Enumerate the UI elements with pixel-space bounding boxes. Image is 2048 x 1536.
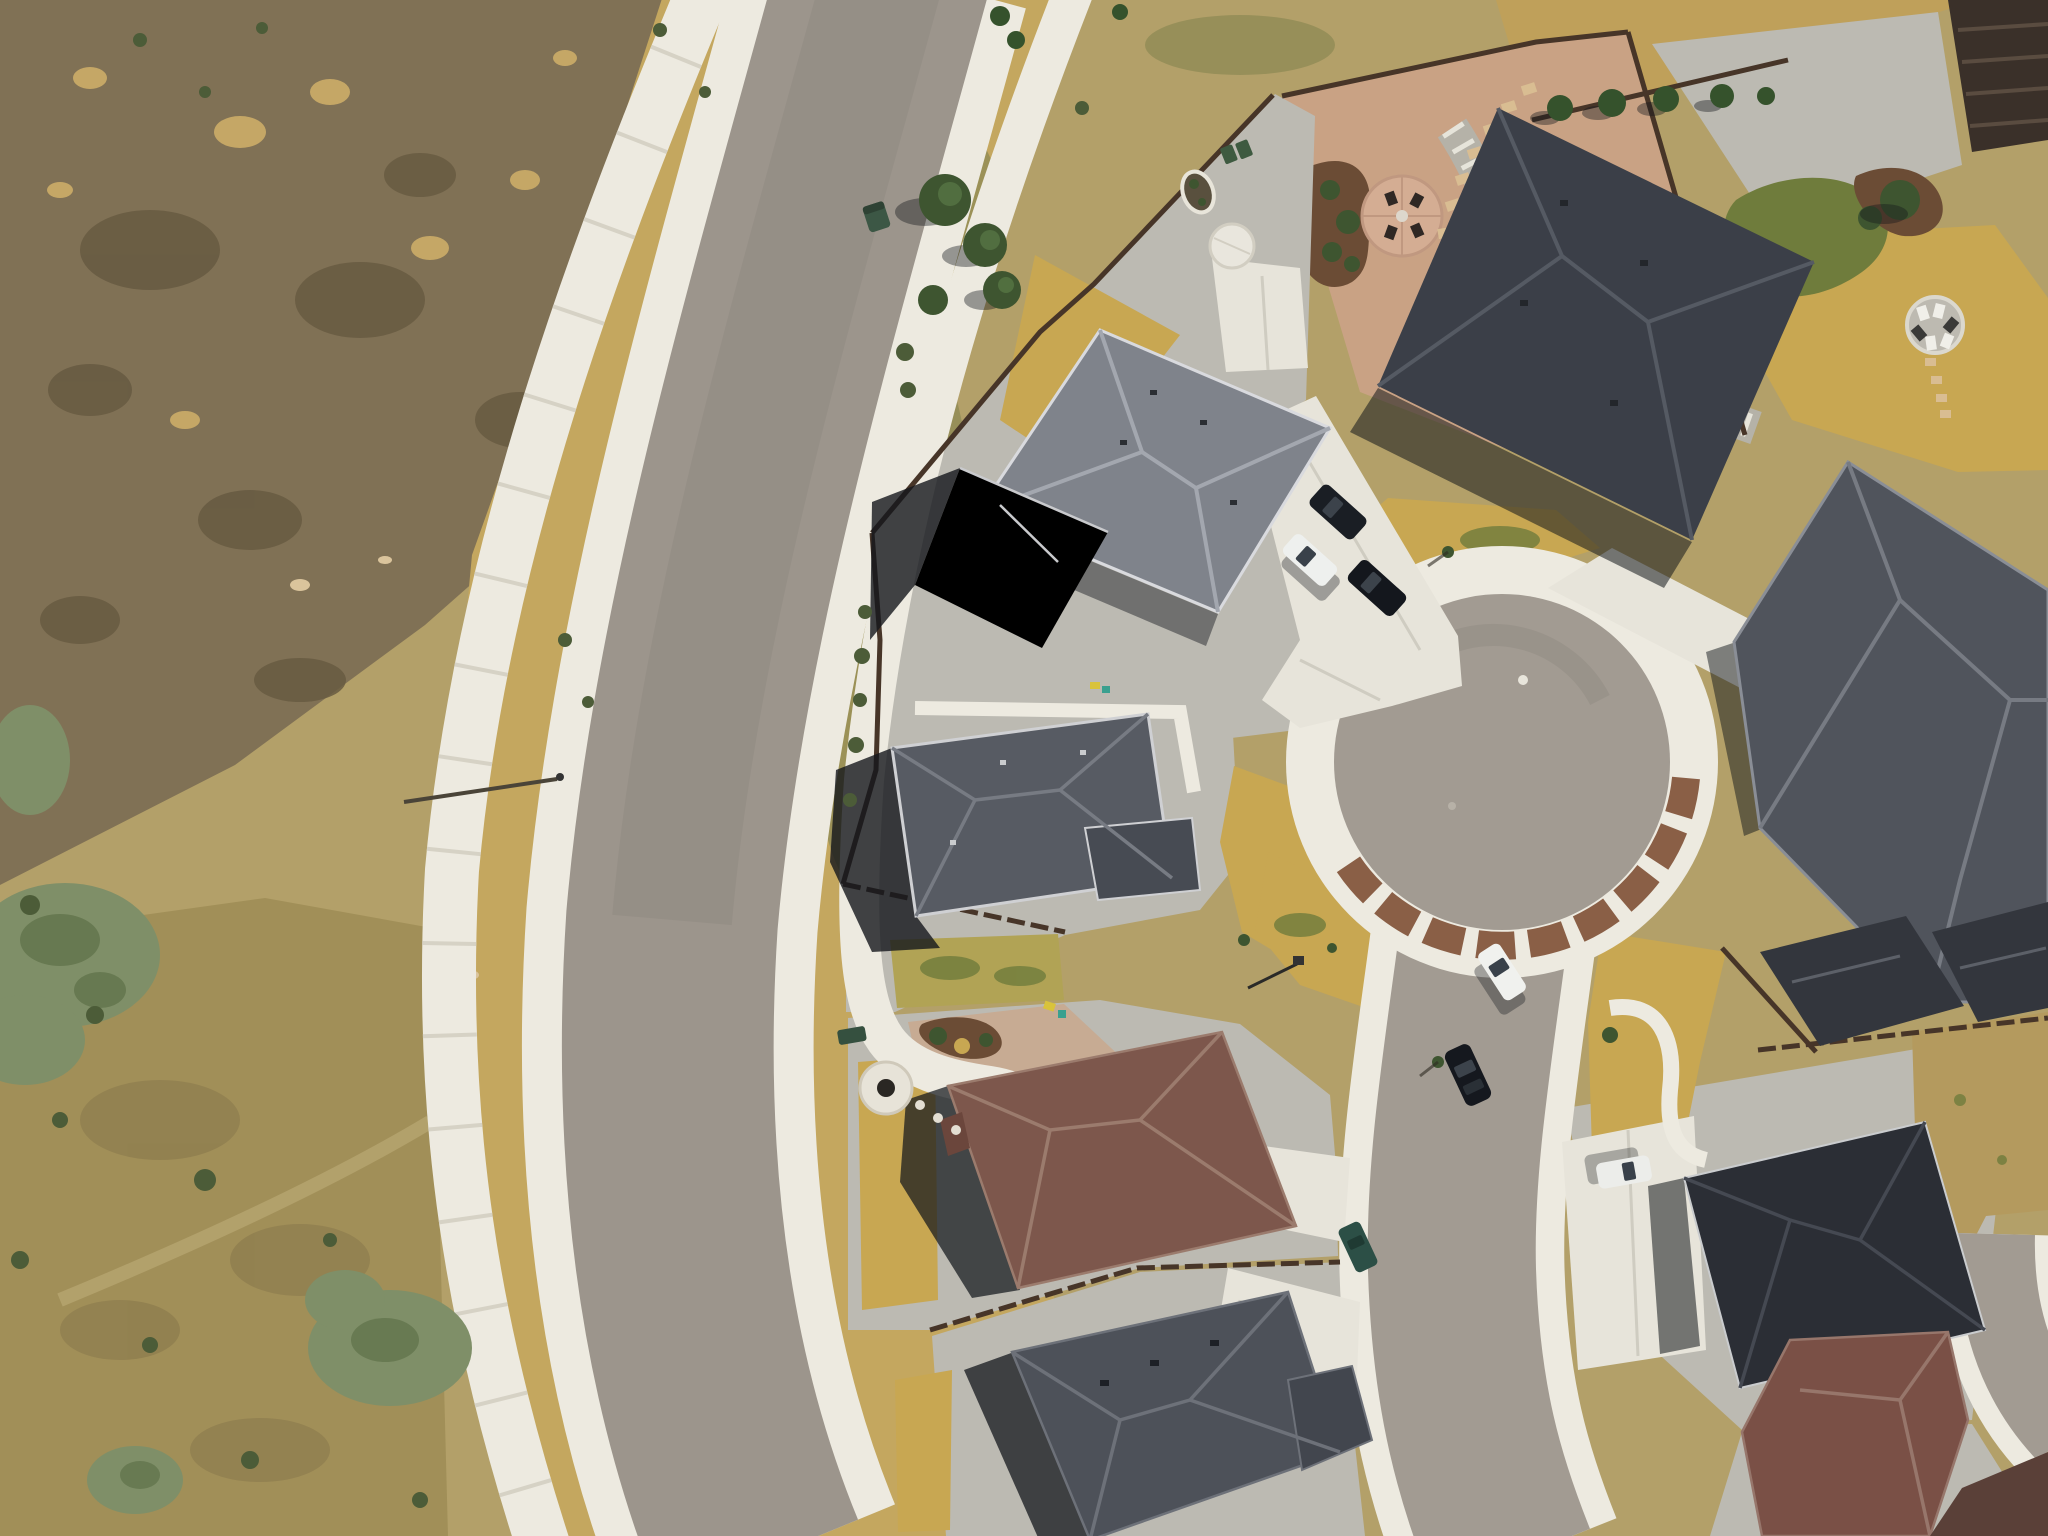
wing [1085, 818, 1200, 900]
planter-shrub [1189, 179, 1199, 189]
planter-shrub [1198, 198, 1206, 206]
aerial-photo-canvas [0, 0, 2048, 1536]
manhole-2 [1448, 802, 1456, 810]
g-yard-shrub [979, 1033, 993, 1047]
house-center-left [892, 714, 1200, 916]
g-yard-shrub [929, 1027, 947, 1045]
aerial-photo [0, 0, 2048, 1536]
patio-top-house [1212, 258, 1308, 372]
manhole [1518, 675, 1528, 685]
ornamental-grass [954, 1038, 970, 1054]
fire-pit [877, 1079, 895, 1097]
